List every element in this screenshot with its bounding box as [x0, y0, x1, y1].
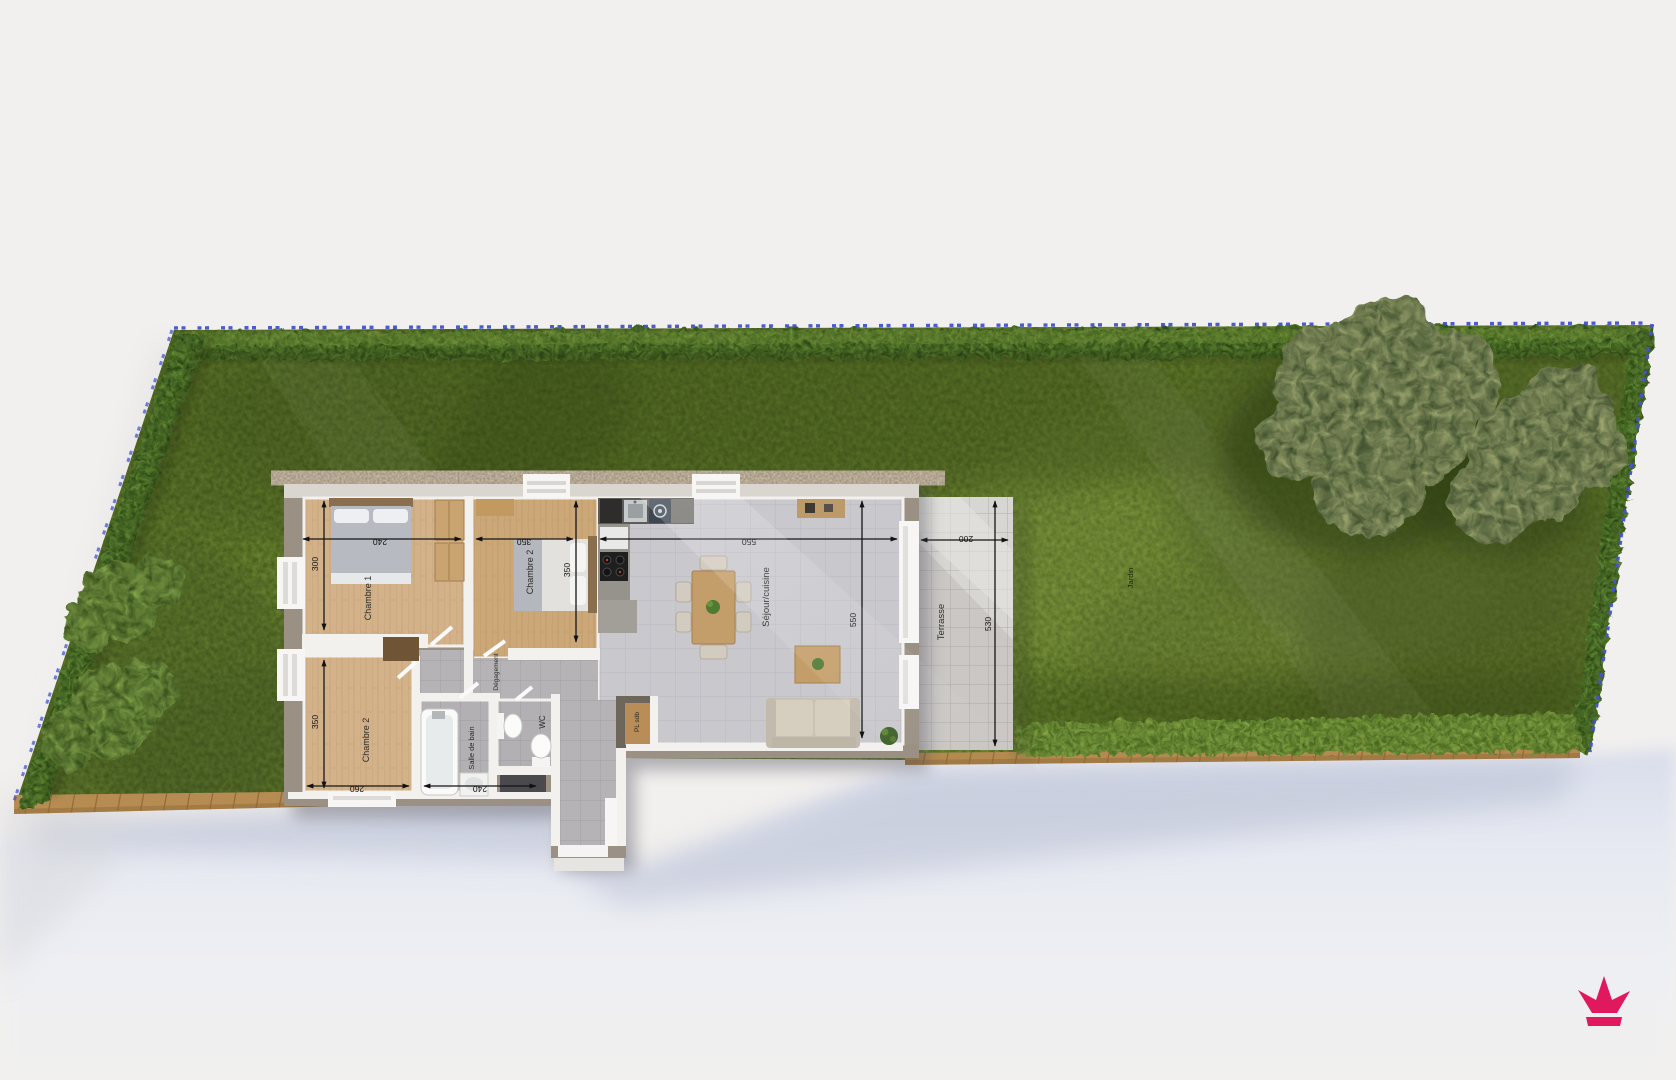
svg-text:Salle de bain: Salle de bain	[467, 726, 476, 769]
svg-text:Chambre 1: Chambre 1	[363, 576, 373, 621]
svg-text:530: 530	[983, 617, 993, 631]
svg-text:350: 350	[517, 537, 531, 547]
svg-text:Jardin: Jardin	[1126, 568, 1135, 588]
svg-text:Terrasse: Terrasse	[936, 604, 947, 640]
svg-text:300: 300	[310, 557, 320, 571]
svg-text:Chambre 2: Chambre 2	[525, 550, 535, 595]
svg-text:PL sdb: PL sdb	[634, 712, 641, 732]
svg-text:260: 260	[350, 784, 364, 794]
svg-text:350: 350	[562, 563, 572, 577]
svg-text:Chambre 2: Chambre 2	[361, 718, 371, 763]
svg-text:240: 240	[373, 537, 387, 547]
svg-text:240: 240	[473, 784, 487, 794]
svg-text:WC: WC	[538, 715, 547, 729]
svg-text:350: 350	[310, 715, 320, 729]
svg-text:Dégagement: Dégagement	[493, 653, 500, 690]
svg-text:200: 200	[959, 534, 973, 544]
